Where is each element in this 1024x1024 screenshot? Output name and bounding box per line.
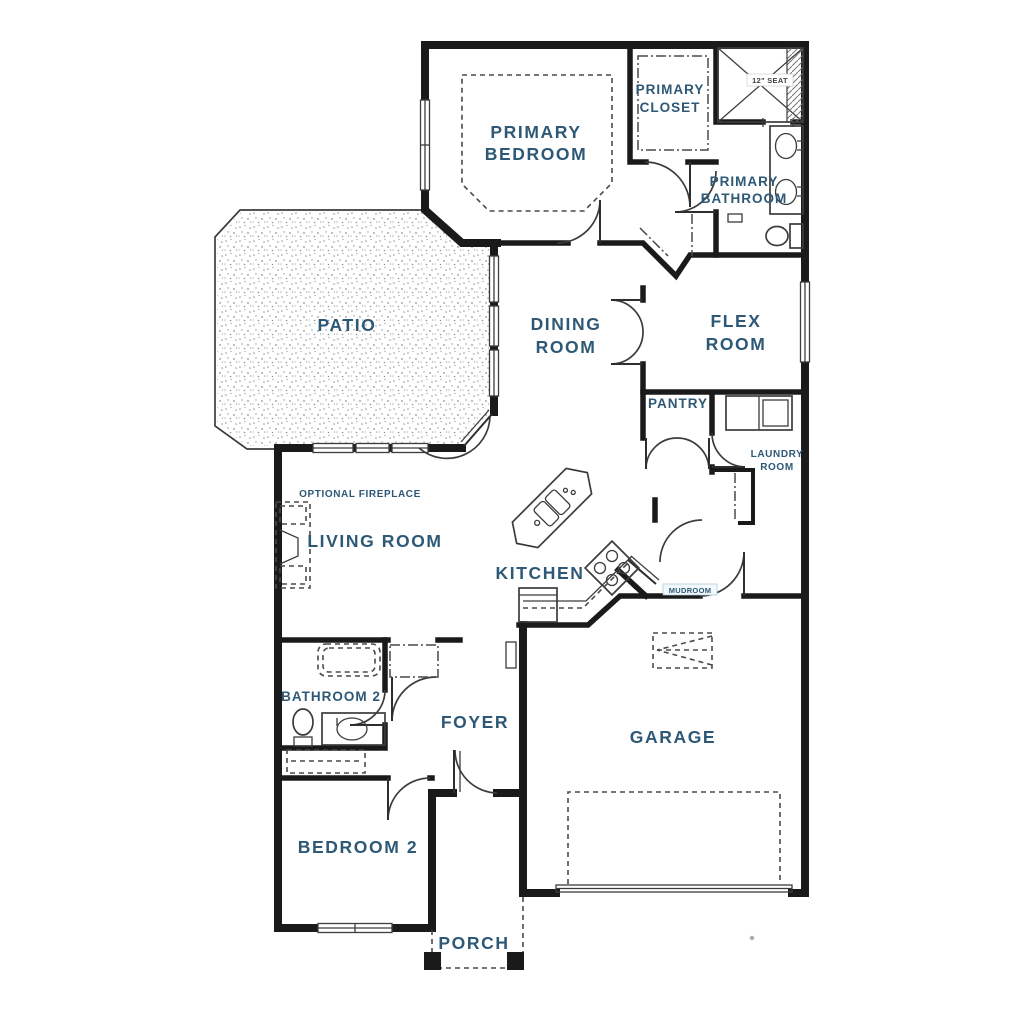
foyer-wall-niche bbox=[506, 642, 516, 668]
label-primary-closet-line1: PRIMARY bbox=[636, 82, 705, 97]
label-porch: PORCH bbox=[438, 933, 509, 953]
label-optional-fireplace: OPTIONAL FIREPLACE bbox=[299, 489, 421, 500]
window-primary-bedroom-left bbox=[421, 100, 430, 190]
label-bedroom-2: BEDROOM 2 bbox=[298, 837, 418, 857]
label-foyer: FOYER bbox=[441, 712, 509, 732]
windows-dining-patio bbox=[490, 256, 499, 396]
window-bedroom2-bottom bbox=[318, 924, 392, 933]
label-primary-bathroom-line2: BATHROOM bbox=[701, 191, 788, 206]
floor-plan: PRIMARY BEDROOM PRIMARY CLOSET PRIMARY B… bbox=[0, 0, 1024, 1024]
label-bathroom-2: BATHROOM 2 bbox=[281, 689, 381, 704]
label-dining-line2: ROOM bbox=[536, 337, 597, 357]
label-patio: PATIO bbox=[318, 315, 377, 335]
label-primary-bathroom-line1: PRIMARY bbox=[710, 174, 779, 189]
label-pantry: PANTRY bbox=[648, 396, 708, 411]
label-mudroom: MUDROOM bbox=[669, 586, 712, 595]
label-living-room: LIVING ROOM bbox=[307, 531, 442, 551]
porch-column-left bbox=[424, 952, 441, 970]
label-flex-line1: FLEX bbox=[710, 311, 761, 331]
window-flex-right bbox=[801, 282, 810, 362]
label-primary-bedroom-line2: BEDROOM bbox=[485, 144, 588, 164]
porch-column-right bbox=[507, 952, 524, 970]
label-primary-closet-line2: CLOSET bbox=[640, 100, 701, 115]
label-laundry-line2: ROOM bbox=[760, 462, 794, 473]
label-shower-seat: 12" SEAT bbox=[752, 76, 788, 85]
label-primary-bedroom-line1: PRIMARY bbox=[490, 122, 581, 142]
label-dining-line1: DINING bbox=[531, 314, 602, 334]
stray-dot bbox=[750, 936, 754, 940]
label-flex-line2: ROOM bbox=[706, 334, 767, 354]
label-garage: GARAGE bbox=[630, 727, 716, 747]
windows-living-patio bbox=[313, 444, 428, 453]
label-laundry-line1: LAUNDRY bbox=[751, 449, 804, 460]
label-kitchen: KITCHEN bbox=[496, 563, 585, 583]
